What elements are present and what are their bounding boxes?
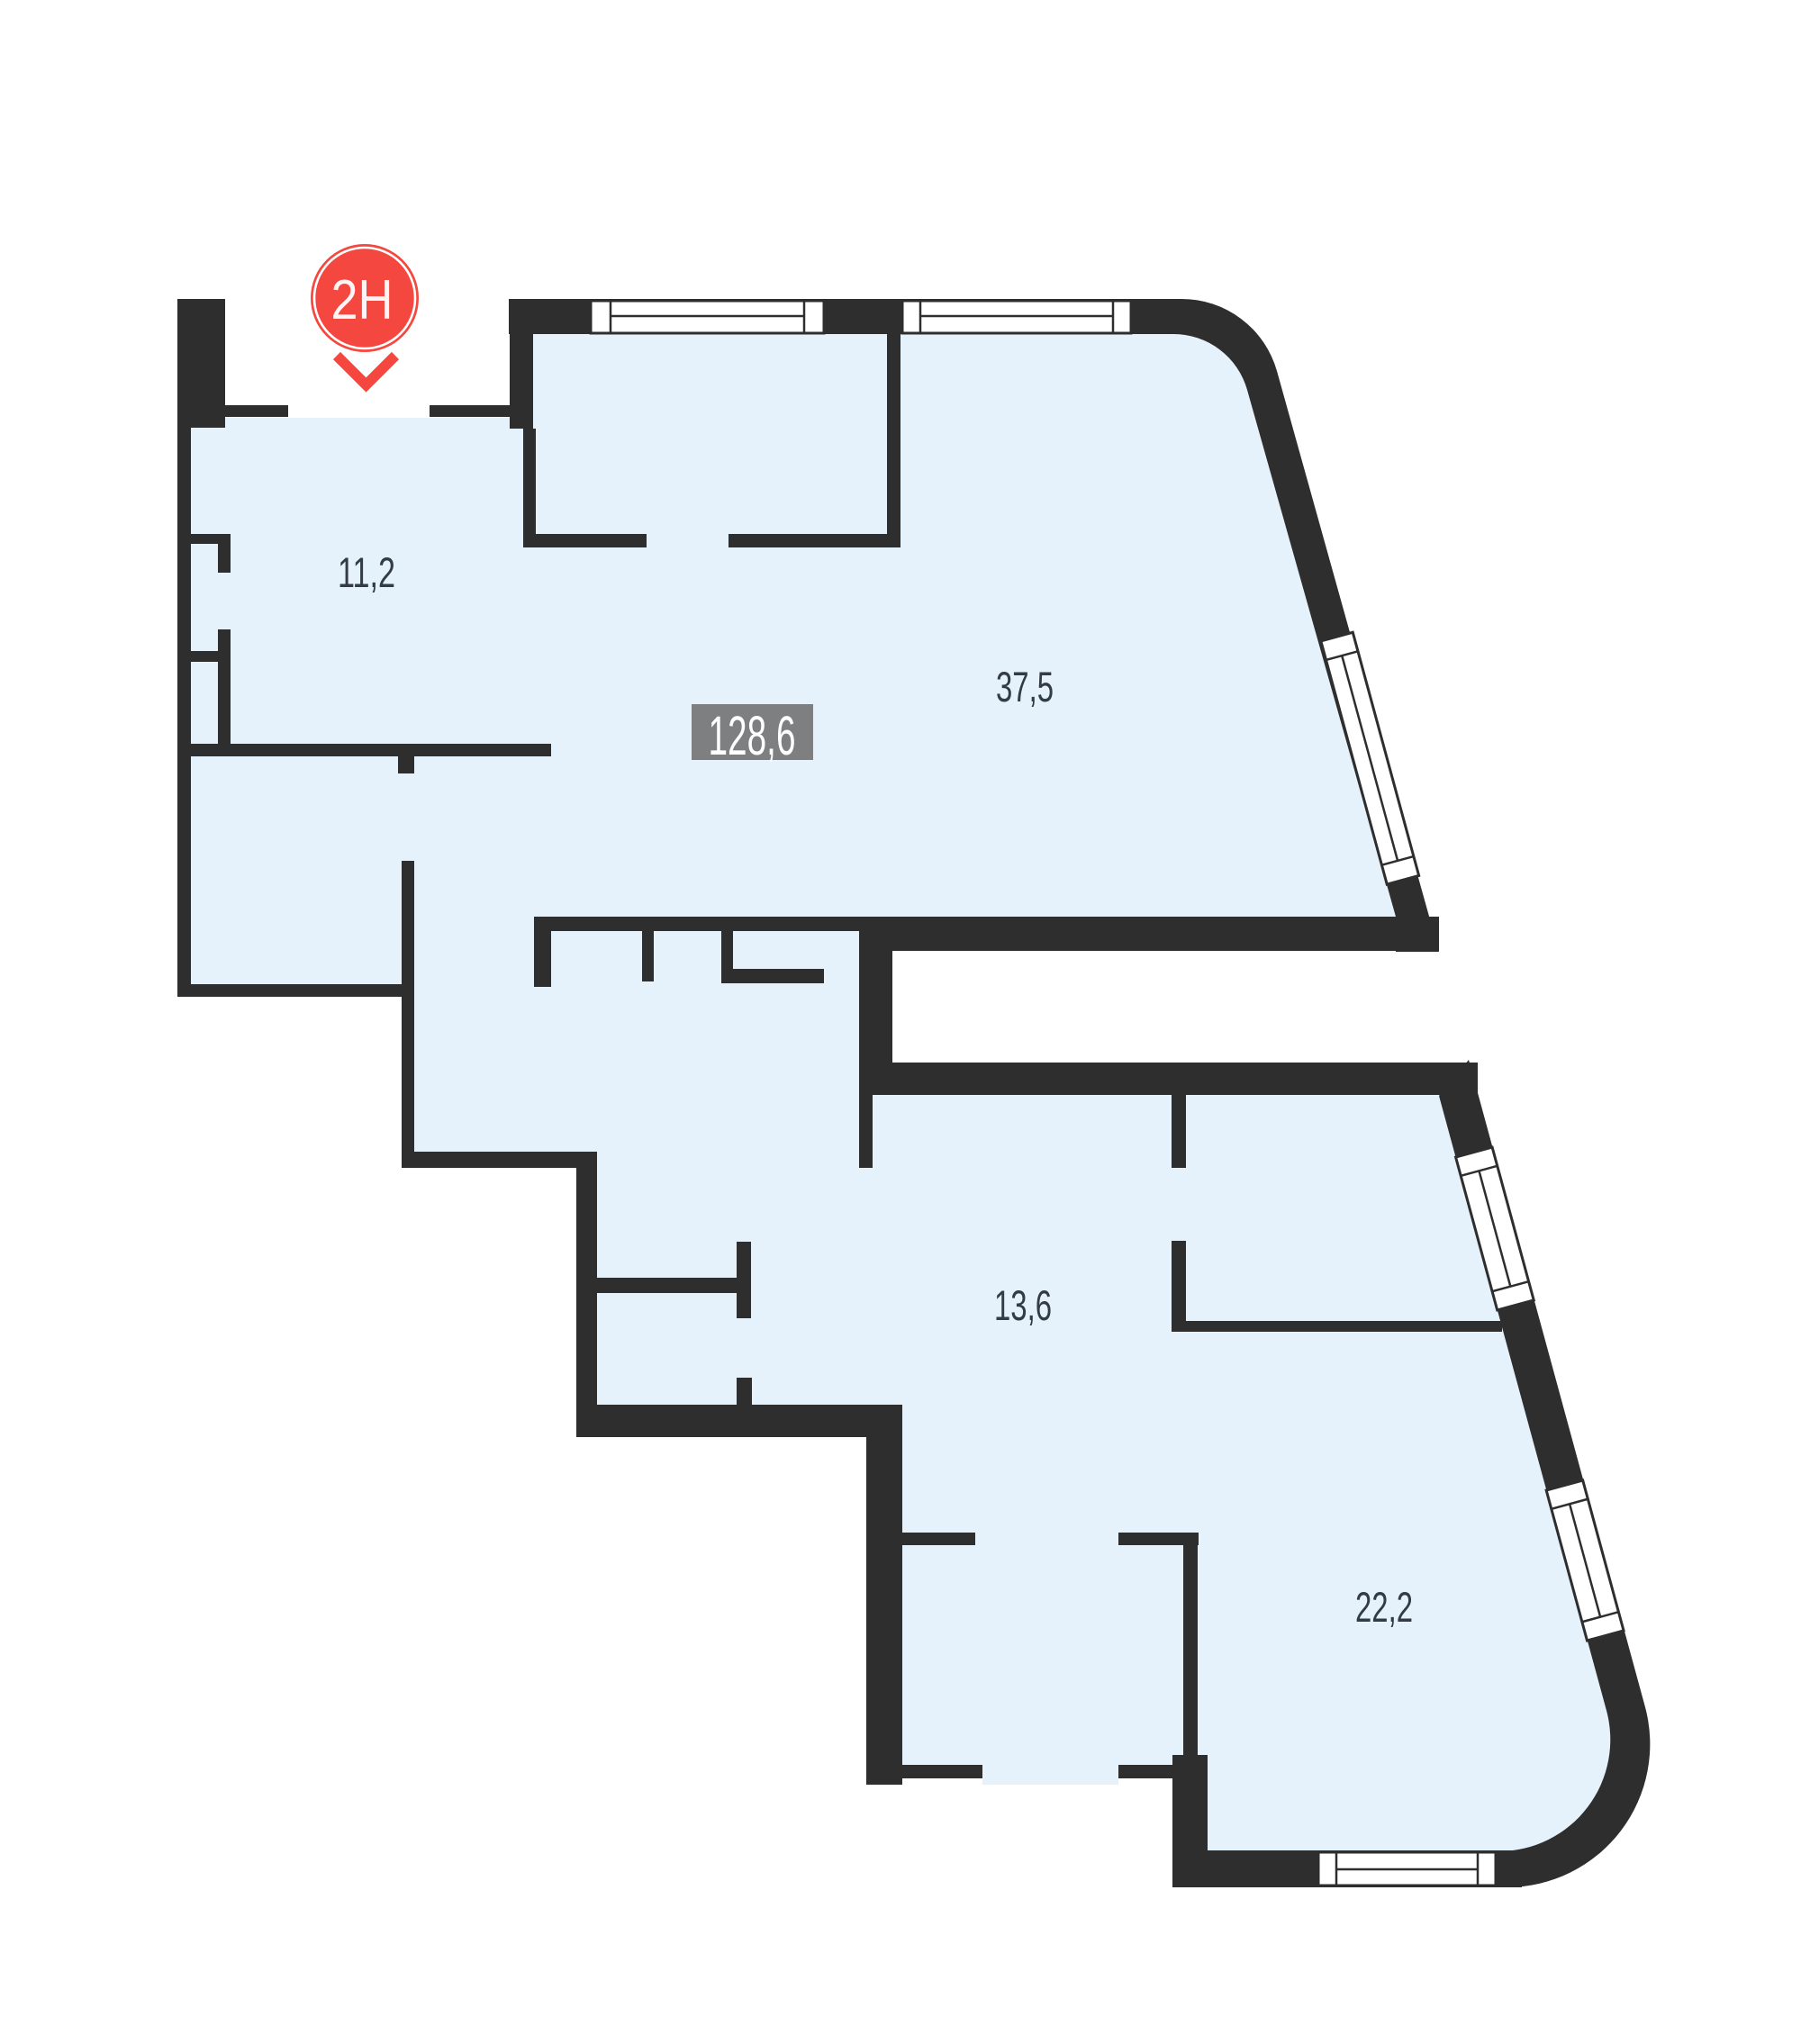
svg-text:2H: 2H [331,269,394,331]
svg-text:13,6: 13,6 [994,1281,1052,1329]
svg-text:37,5: 37,5 [996,663,1054,710]
svg-text:11,2: 11,2 [338,548,395,596]
svg-text:128,6: 128,6 [709,705,796,766]
svg-text:22,2: 22,2 [1355,1583,1413,1631]
